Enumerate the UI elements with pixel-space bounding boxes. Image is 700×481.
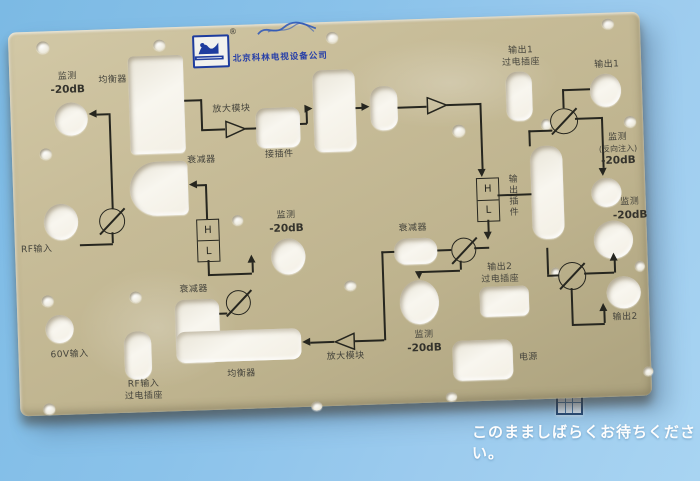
cutout-60v — [45, 315, 74, 344]
arrow-down — [484, 232, 492, 240]
label-monitor-mid: 监测 -20dB — [258, 210, 315, 237]
label-text: -20dB — [40, 82, 96, 97]
grid-line — [558, 402, 581, 403]
label-60v-input: 60V输入 — [50, 349, 88, 362]
amplifier-symbol — [426, 96, 448, 115]
label-text: 过电插座 — [487, 56, 555, 70]
signal-line — [354, 339, 384, 341]
label-monitor-tl: 监测 -20dB — [39, 71, 96, 98]
cutout-output-plugin-slot — [530, 145, 565, 239]
cutout-output2-socket — [480, 285, 530, 317]
signal-line — [546, 248, 548, 275]
mount-hole — [153, 39, 165, 50]
signal-line — [381, 251, 385, 340]
signal-line — [97, 113, 109, 115]
mount-hole — [624, 116, 636, 127]
mount-hole — [452, 124, 465, 136]
arrow-down — [478, 169, 486, 177]
label-attenuator-left: 衰减器 — [179, 284, 208, 297]
label-text: -20dB — [582, 153, 654, 169]
cutout-attenuator-d — [129, 161, 189, 217]
label-attenuator-top: 衰减器 — [187, 155, 216, 168]
arrow-down — [599, 168, 607, 176]
company-logo-icon — [192, 34, 230, 68]
signal-line — [584, 272, 614, 274]
signal-line — [109, 113, 114, 209]
label-output2: 输出2 — [612, 312, 638, 325]
amplifier-symbol — [225, 120, 247, 139]
mount-hole — [40, 148, 52, 159]
label-equalizer-top: 均衡器 — [98, 75, 127, 88]
mount-hole — [36, 41, 49, 53]
label-monitor-right: 监测 -20dB — [602, 196, 659, 223]
arrow-right — [304, 105, 312, 113]
hl-h-label: H — [477, 178, 499, 200]
label-attenuator-mid: 衰减器 — [398, 223, 427, 236]
cutout-monitor-mid — [271, 238, 306, 275]
mount-hole — [311, 401, 322, 410]
signal-line — [603, 310, 605, 323]
label-output1: 输出1 — [594, 59, 620, 72]
signal-line — [245, 127, 256, 129]
label-text: -20dB — [602, 208, 658, 223]
label-text: -20dB — [396, 341, 452, 356]
label-text: 过电插座 — [106, 390, 182, 404]
mount-hole — [602, 18, 614, 28]
cutout-rf-input — [44, 203, 79, 240]
signal-line — [80, 243, 113, 246]
signal-line — [437, 249, 451, 251]
mount-hole — [643, 366, 653, 375]
signal-line — [207, 260, 209, 275]
arch-bridge-logo — [194, 36, 224, 62]
cutout-equalizer-top — [128, 55, 186, 155]
hl-filter-box: H L — [196, 219, 220, 263]
signal-line — [200, 99, 203, 130]
wait-message: このまましばらくお待ちください。 — [472, 421, 700, 463]
signal-line — [201, 128, 225, 130]
signal-line — [575, 117, 601, 119]
mount-hole — [232, 215, 243, 225]
signal-line — [571, 288, 574, 324]
arrow-left — [189, 180, 197, 188]
hl-filter-box: H L — [476, 177, 500, 222]
coupler-tap-line — [551, 108, 577, 135]
signal-line — [310, 341, 334, 343]
signal-line — [208, 273, 252, 276]
signal-line — [474, 247, 489, 249]
signal-line — [572, 323, 605, 326]
arrow-up — [247, 254, 255, 262]
cutout-module-rect — [312, 69, 357, 152]
coupler-symbol — [558, 262, 587, 291]
registered-trademark: ® — [229, 27, 237, 36]
coupler-tap-line — [99, 208, 125, 235]
coupler-tap-line — [559, 262, 585, 289]
label-output-plugin: 输出插件 — [505, 174, 519, 246]
signal-line — [252, 263, 254, 273]
arrow-down — [415, 271, 423, 279]
coupler-tap-line — [226, 289, 252, 316]
arrow-up — [609, 252, 617, 260]
screenshot-root: { "colors":{"background_top":"#7cbae4","… — [0, 0, 700, 481]
cutout-attenuator-pill-mid — [394, 237, 438, 264]
ink-scribble — [253, 16, 320, 44]
signal-line — [381, 251, 394, 253]
coupler-symbol — [550, 108, 579, 135]
coupler-tap-line — [451, 236, 477, 263]
mount-hole — [446, 392, 457, 401]
arrow-left — [302, 338, 310, 346]
cutout-monitor-center — [399, 279, 439, 324]
signal-line — [205, 184, 208, 219]
mount-hole — [344, 280, 356, 290]
signal-line — [184, 99, 201, 101]
label-amp-module-bottom: 放大模块 — [327, 351, 365, 364]
label-monitor-center: 监测 -20dB — [396, 329, 453, 356]
cutout-rf-socket-slot — [124, 331, 153, 380]
label-rf-socket: RF输入 过电插座 — [105, 378, 182, 404]
label-monitor-reverse: 监测 (反向注入) -20dB — [581, 131, 654, 169]
cutout-output2 — [606, 276, 641, 309]
amplifier-symbol — [334, 332, 356, 351]
label-power: 电源 — [519, 352, 538, 364]
signal-line — [419, 270, 460, 273]
label-text: -20dB — [258, 221, 314, 236]
coupler-symbol — [99, 208, 126, 235]
label-connector: 接插件 — [265, 149, 294, 162]
cutout-connector — [255, 107, 300, 148]
arrow-right — [361, 103, 369, 111]
mount-hole — [326, 32, 338, 43]
cutout-output1 — [590, 73, 622, 107]
arrow-left — [88, 110, 96, 118]
hl-l-label: L — [478, 200, 500, 221]
coupler-symbol — [451, 237, 477, 263]
cutout-output1-socket — [505, 71, 533, 121]
signal-line — [528, 130, 552, 132]
hl-h-label: H — [197, 220, 219, 242]
label-amp-module-top: 放大模块 — [212, 104, 250, 117]
coupler-symbol — [225, 290, 251, 316]
company-name: 北京科林电视设备公司 — [233, 49, 328, 64]
cutout-monitor-tl — [54, 102, 88, 136]
mount-hole — [43, 403, 55, 414]
cutout-attenuator-pill-top — [370, 86, 398, 131]
label-text: 过电插座 — [466, 273, 534, 287]
signal-line — [562, 89, 564, 108]
label-output1-socket: 输出1 过电插座 — [487, 44, 556, 70]
mount-hole — [42, 295, 54, 306]
cutout-equalizer-L-horiz — [176, 328, 302, 363]
label-equalizer-bottom: 均衡器 — [227, 369, 256, 382]
signal-line — [528, 130, 530, 146]
signal-line — [614, 260, 616, 273]
cutout-power — [452, 339, 513, 381]
mount-hole — [635, 261, 645, 271]
signal-line — [562, 88, 590, 90]
label-output2-socket: 输出2 过电插座 — [466, 261, 535, 287]
hl-l-label: L — [198, 241, 220, 262]
arrow-up — [599, 303, 607, 311]
metal-panel-photo: ® 北京科林电视设备公司 — [8, 12, 652, 417]
label-rf-input: RF输入 — [21, 244, 53, 257]
